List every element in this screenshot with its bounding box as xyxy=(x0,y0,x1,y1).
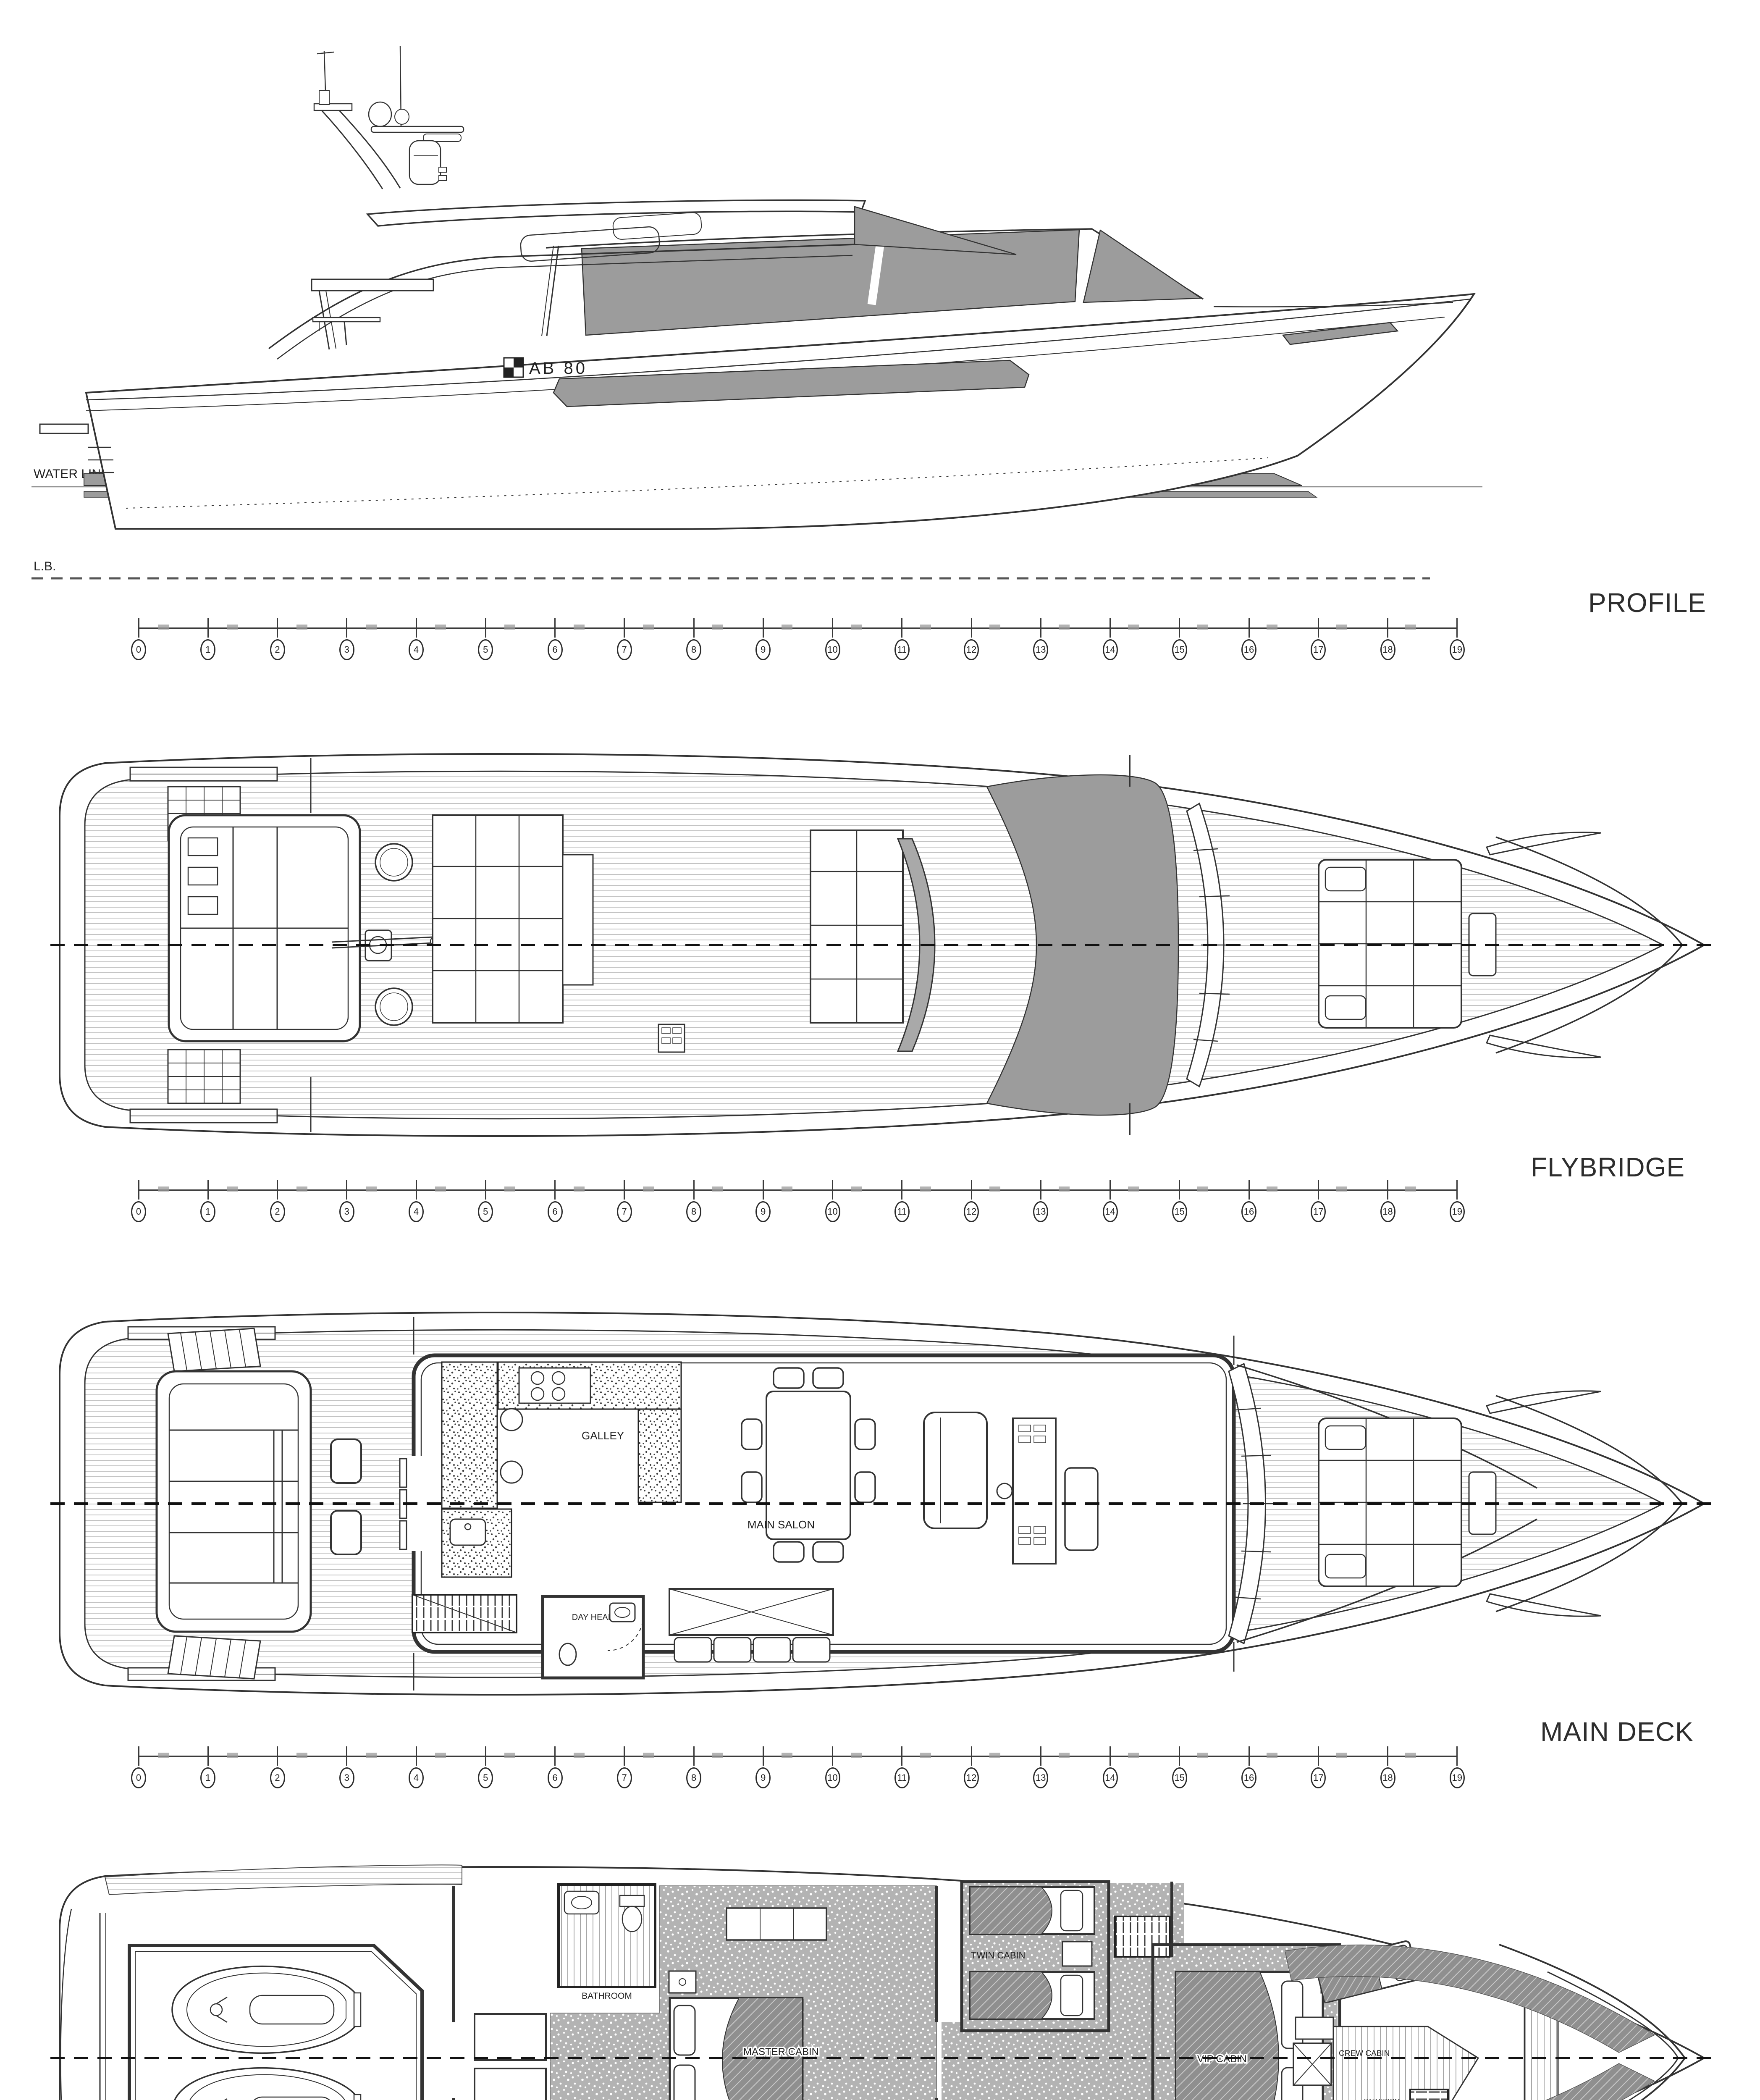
brand-text: AB 80 xyxy=(529,359,588,378)
station-mark: 2 xyxy=(270,614,285,660)
station-mark: 14 xyxy=(1103,1742,1117,1788)
station-mark: 19 xyxy=(1450,614,1464,660)
station-mark: 10 xyxy=(826,614,840,660)
sink xyxy=(610,1603,635,1622)
dining-chair xyxy=(742,1419,762,1449)
pillow xyxy=(674,2065,695,2100)
station-number-badge: 16 xyxy=(1241,639,1256,660)
station-tick xyxy=(1249,618,1250,638)
station-tick xyxy=(832,1746,833,1766)
side-stair-hatch xyxy=(168,1636,260,1679)
deck-crane xyxy=(313,318,380,345)
station-tick xyxy=(1387,1180,1388,1200)
station-tick xyxy=(763,618,764,638)
satcom-dome xyxy=(369,102,391,126)
station-number-badge: 3 xyxy=(339,639,354,660)
station-mark: 9 xyxy=(756,1176,770,1222)
station-tick xyxy=(1387,1746,1388,1766)
station-number-badge: 1 xyxy=(200,1201,215,1222)
station-mark: 9 xyxy=(756,1742,770,1788)
station-mark: 15 xyxy=(1172,1742,1187,1788)
station-mark: 10 xyxy=(826,1176,840,1222)
station-tick xyxy=(1249,1746,1250,1766)
windshield-glass xyxy=(1083,230,1201,302)
station-tick xyxy=(1249,1180,1250,1200)
station-tick xyxy=(971,1746,972,1766)
crew-bathroom-label: BATHROOM xyxy=(1364,2097,1400,2100)
bar-stool xyxy=(501,1409,522,1431)
station-number-badge: 6 xyxy=(548,1767,563,1788)
bow-rail xyxy=(1487,832,1601,855)
station-number-badge: 17 xyxy=(1311,639,1326,660)
station-mark: 5 xyxy=(478,1742,493,1788)
station-tick xyxy=(1318,1180,1319,1200)
salon-sofa xyxy=(669,1589,833,1662)
station-tick xyxy=(554,1180,556,1200)
master-cabin-label: MASTER CABIN xyxy=(743,2046,819,2058)
station-number-badge: 14 xyxy=(1103,639,1118,660)
main-deck-station-ruler: 0 1 2 3 4 5 6 7 xyxy=(139,1742,1457,1797)
station-tick xyxy=(1318,1746,1319,1766)
crew-step xyxy=(1296,2017,1333,2039)
station-tick xyxy=(624,618,625,638)
day-head: DAY HEAD xyxy=(543,1596,643,1678)
station-mark: 4 xyxy=(409,614,423,660)
station-tick xyxy=(832,1180,833,1200)
station-number-badge: 0 xyxy=(131,1767,146,1788)
station-mark: 8 xyxy=(687,1742,701,1788)
station-number-badge: 12 xyxy=(964,1201,979,1222)
station-number-badge: 13 xyxy=(1033,639,1048,660)
station-tick xyxy=(1179,1746,1180,1766)
station-number-badge: 17 xyxy=(1311,1767,1326,1788)
profile-label: PROFILE xyxy=(1588,587,1706,618)
swim-platform xyxy=(40,424,88,433)
station-mark: 17 xyxy=(1311,614,1325,660)
station-number-badge: 2 xyxy=(270,1201,285,1222)
lb-label: L.B. xyxy=(34,559,56,573)
dining-chair xyxy=(774,1542,804,1562)
station-mark: 12 xyxy=(964,1742,978,1788)
station-tick xyxy=(485,1746,486,1766)
station-tick xyxy=(1040,1180,1041,1200)
lower-deck-drawing: BATHROOM MASTER CABIN GUEST CABIN xyxy=(42,1846,1726,2100)
master-bathroom: BATHROOM xyxy=(559,1885,655,2001)
hardtop xyxy=(367,200,865,226)
station-tick xyxy=(346,618,347,638)
profile-station-ruler: 0 1 2 3 4 5 6 7 xyxy=(139,614,1457,669)
flybridge-station-ruler: 0 1 2 3 4 5 6 7 xyxy=(139,1176,1457,1231)
profile-drawing: L.B. WATER LINE xyxy=(25,34,1520,622)
toilet xyxy=(622,1906,642,1932)
station-number-badge: 1 xyxy=(200,639,215,660)
station-mark: 2 xyxy=(270,1742,285,1788)
station-number-badge: 17 xyxy=(1311,1201,1326,1222)
station-number-badge: 19 xyxy=(1450,1201,1465,1222)
station-mark: 3 xyxy=(340,614,354,660)
station-tick xyxy=(693,618,695,638)
station-tick xyxy=(416,1746,417,1766)
toilet xyxy=(559,1643,576,1665)
pillow xyxy=(674,2005,695,2055)
station-number-badge: 2 xyxy=(270,1767,285,1788)
dining-chair xyxy=(855,1419,875,1449)
galley-label: GALLEY xyxy=(582,1429,624,1442)
twin-cabin-label: TWIN CABIN xyxy=(971,1950,1026,1961)
station-tick xyxy=(1110,1180,1111,1200)
station-tick xyxy=(901,1180,902,1200)
station-tick xyxy=(1456,618,1458,638)
station-number-badge: 16 xyxy=(1241,1201,1256,1222)
station-tick xyxy=(763,1180,764,1200)
station-mark: 0 xyxy=(131,1176,146,1222)
station-number-badge: 7 xyxy=(617,639,632,660)
flybridge-label: FLYBRIDGE xyxy=(1531,1152,1685,1183)
station-tick xyxy=(138,1746,139,1766)
station-mark: 1 xyxy=(201,614,215,660)
round-table xyxy=(375,844,412,881)
radar-pod xyxy=(409,141,441,184)
main-deck-drawing: GALLEY MAIN SALON xyxy=(42,1291,1726,1716)
station-mark: 13 xyxy=(1033,1176,1048,1222)
nightstand xyxy=(669,1971,696,1993)
station-mark: 17 xyxy=(1311,1176,1325,1222)
station-mark: 16 xyxy=(1242,614,1256,660)
jet-ski xyxy=(172,1966,361,2053)
station-number-badge: 18 xyxy=(1380,1767,1395,1788)
station-tick xyxy=(901,1746,902,1766)
station-mark: 1 xyxy=(201,1742,215,1788)
stern-stair-hatch xyxy=(168,1050,240,1103)
station-mark: 11 xyxy=(895,614,909,660)
station-number-badge: 3 xyxy=(339,1201,354,1222)
station-tick xyxy=(554,618,556,638)
station-number-badge: 18 xyxy=(1380,1201,1395,1222)
station-mark: 14 xyxy=(1103,614,1117,660)
station-tick xyxy=(485,618,486,638)
station-number-badge: 1 xyxy=(200,1767,215,1788)
station-mark: 1 xyxy=(201,1176,215,1222)
station-number-badge: 6 xyxy=(548,639,563,660)
dining-chair xyxy=(774,1368,804,1388)
station-mark: 11 xyxy=(895,1742,909,1788)
station-tick xyxy=(1040,618,1041,638)
station-tick xyxy=(1110,1746,1111,1766)
station-tick xyxy=(1040,1746,1041,1766)
bar-stool xyxy=(501,1461,522,1483)
station-number-badge: 19 xyxy=(1450,639,1465,660)
station-number-badge: 8 xyxy=(686,1767,701,1788)
station-number-badge: 5 xyxy=(478,639,493,660)
station-tick xyxy=(277,1746,278,1766)
station-number-badge: 5 xyxy=(478,1201,493,1222)
station-mark: 11 xyxy=(895,1176,909,1222)
station-number-badge: 10 xyxy=(825,639,840,660)
station-tick xyxy=(554,1746,556,1766)
dining-table xyxy=(766,1391,850,1539)
station-number-badge: 8 xyxy=(686,639,701,660)
station-number-badge: 15 xyxy=(1172,1201,1187,1222)
flybridge-drawing xyxy=(42,733,1726,1157)
bow-rail xyxy=(1487,1391,1601,1413)
station-tick xyxy=(1456,1746,1458,1766)
pillow xyxy=(1061,1890,1083,1931)
station-number-badge: 3 xyxy=(339,1767,354,1788)
radar-mast xyxy=(314,46,464,189)
station-mark: 8 xyxy=(687,1176,701,1222)
dresser xyxy=(727,1908,826,1940)
master-bathroom-label: BATHROOM xyxy=(582,1991,632,2001)
station-mark: 4 xyxy=(409,1742,423,1788)
station-number-badge: 4 xyxy=(409,1767,424,1788)
wet-bar xyxy=(658,1024,685,1052)
galley-sink xyxy=(450,1519,485,1545)
station-tick xyxy=(416,1180,417,1200)
corridor-carpet xyxy=(942,2031,1160,2100)
station-tick xyxy=(138,1180,139,1200)
station-number-badge: 11 xyxy=(894,639,910,660)
station-number-badge: 13 xyxy=(1033,1201,1048,1222)
station-tick xyxy=(971,1180,972,1200)
round-table xyxy=(375,988,412,1025)
station-tick xyxy=(207,618,209,638)
station-mark: 6 xyxy=(548,1742,562,1788)
station-number-badge: 0 xyxy=(131,1201,146,1222)
station-number-badge: 12 xyxy=(964,639,979,660)
station-tick xyxy=(346,1746,347,1766)
station-number-badge: 5 xyxy=(478,1767,493,1788)
station-number-badge: 8 xyxy=(686,1201,701,1222)
station-number-badge: 10 xyxy=(825,1767,840,1788)
station-number-badge: 9 xyxy=(755,1767,771,1788)
cockpit-side-table xyxy=(331,1439,361,1483)
station-number-badge: 7 xyxy=(617,1201,632,1222)
station-tick xyxy=(693,1746,695,1766)
station-mark: 13 xyxy=(1033,1742,1048,1788)
station-mark: 19 xyxy=(1450,1176,1464,1222)
crew-cabin-label: CREW CABIN xyxy=(1339,2049,1390,2058)
dining-chair xyxy=(813,1368,843,1388)
main-salon-label: MAIN SALON xyxy=(748,1518,815,1531)
station-mark: 18 xyxy=(1381,1176,1395,1222)
day-head-label: DAY HEAD xyxy=(572,1613,614,1622)
station-number-badge: 4 xyxy=(409,1201,424,1222)
helm-seating xyxy=(810,830,903,1023)
station-mark: 7 xyxy=(617,1176,632,1222)
station-tick xyxy=(763,1746,764,1766)
station-mark: 5 xyxy=(478,1176,493,1222)
station-number-badge: 7 xyxy=(617,1767,632,1788)
station-mark: 15 xyxy=(1172,1176,1187,1222)
station-tick xyxy=(207,1746,209,1766)
tender-garage xyxy=(129,1945,422,2100)
station-number-badge: 13 xyxy=(1033,1767,1048,1788)
pillow xyxy=(1061,1975,1083,2016)
station-mark: 2 xyxy=(270,1176,285,1222)
station-number-badge: 16 xyxy=(1241,1767,1256,1788)
station-mark: 13 xyxy=(1033,614,1048,660)
station-number-badge: 11 xyxy=(894,1767,910,1788)
station-number-badge: 18 xyxy=(1380,639,1395,660)
yacht-general-arrangement-sheet: L.B. WATER LINE xyxy=(0,0,1760,2100)
station-tick xyxy=(346,1180,347,1200)
station-tick xyxy=(901,618,902,638)
station-mark: 12 xyxy=(964,1176,978,1222)
cockpit-side-table xyxy=(331,1511,361,1554)
station-mark: 3 xyxy=(340,1176,354,1222)
nightstand xyxy=(1062,1942,1092,1966)
station-tick xyxy=(1179,1180,1180,1200)
station-mark: 18 xyxy=(1381,614,1395,660)
station-tick xyxy=(693,1180,695,1200)
station-mark: 6 xyxy=(548,1176,562,1222)
station-mark: 3 xyxy=(340,1742,354,1788)
station-number-badge: 9 xyxy=(755,1201,771,1222)
station-mark: 7 xyxy=(617,614,632,660)
station-number-badge: 15 xyxy=(1172,639,1187,660)
station-tick xyxy=(624,1746,625,1766)
station-tick xyxy=(416,618,417,638)
station-mark: 15 xyxy=(1172,614,1187,660)
station-tick xyxy=(277,1180,278,1200)
station-mark: 14 xyxy=(1103,1176,1117,1222)
station-tick xyxy=(1456,1180,1458,1200)
stairs-to-lower-deck xyxy=(412,1595,517,1633)
station-mark: 6 xyxy=(548,614,562,660)
station-tick xyxy=(1110,618,1111,638)
station-number-badge: 10 xyxy=(825,1201,840,1222)
station-mark: 18 xyxy=(1381,1742,1395,1788)
station-number-badge: 12 xyxy=(964,1767,979,1788)
station-mark: 7 xyxy=(617,1742,632,1788)
station-tick xyxy=(971,618,972,638)
brand-logo: AB 80 xyxy=(504,358,588,378)
station-number-badge: 14 xyxy=(1103,1201,1118,1222)
dining-chair xyxy=(742,1472,762,1502)
dining-chair xyxy=(813,1542,843,1562)
station-mark: 0 xyxy=(131,1742,146,1788)
main-deck-label: MAIN DECK xyxy=(1540,1716,1694,1747)
bow-rail xyxy=(1487,1594,1601,1616)
crew-locker xyxy=(1293,2043,1331,2085)
helm-seat xyxy=(924,1412,987,1528)
station-mark: 4 xyxy=(409,1176,423,1222)
station-mark: 12 xyxy=(964,614,978,660)
dining-chair xyxy=(855,1472,875,1502)
station-number-badge: 6 xyxy=(548,1201,563,1222)
station-mark: 9 xyxy=(756,614,770,660)
station-mark: 16 xyxy=(1242,1742,1256,1788)
cockpit-lounge xyxy=(157,1371,311,1632)
aft-sun-lounge xyxy=(169,815,360,1041)
station-number-badge: 9 xyxy=(755,639,771,660)
station-tick xyxy=(277,618,278,638)
station-mark: 19 xyxy=(1450,1742,1464,1788)
station-number-badge: 11 xyxy=(894,1201,910,1222)
station-tick xyxy=(138,618,139,638)
station-mark: 8 xyxy=(687,614,701,660)
station-tick xyxy=(1318,618,1319,638)
station-mark: 10 xyxy=(826,1742,840,1788)
station-mark: 5 xyxy=(478,614,493,660)
radar-arch-wing xyxy=(312,279,433,291)
station-tick xyxy=(485,1180,486,1200)
station-number-badge: 15 xyxy=(1172,1767,1187,1788)
station-number-badge: 0 xyxy=(131,639,146,660)
station-tick xyxy=(1179,618,1180,638)
station-mark: 16 xyxy=(1242,1176,1256,1222)
station-tick xyxy=(207,1180,209,1200)
station-mark: 0 xyxy=(131,614,146,660)
station-number-badge: 4 xyxy=(409,639,424,660)
station-tick xyxy=(1387,618,1388,638)
stairs-to-crew xyxy=(1410,2089,1448,2100)
station-mark: 17 xyxy=(1311,1742,1325,1788)
station-number-badge: 14 xyxy=(1103,1767,1118,1788)
station-tick xyxy=(832,618,833,638)
helm-wheel xyxy=(997,1483,1012,1499)
station-tick xyxy=(624,1180,625,1200)
station-number-badge: 19 xyxy=(1450,1767,1465,1788)
bow-rail xyxy=(1487,1035,1601,1058)
station-number-badge: 2 xyxy=(270,639,285,660)
side-stair-hatch xyxy=(168,1328,260,1371)
sink xyxy=(564,1891,599,1914)
